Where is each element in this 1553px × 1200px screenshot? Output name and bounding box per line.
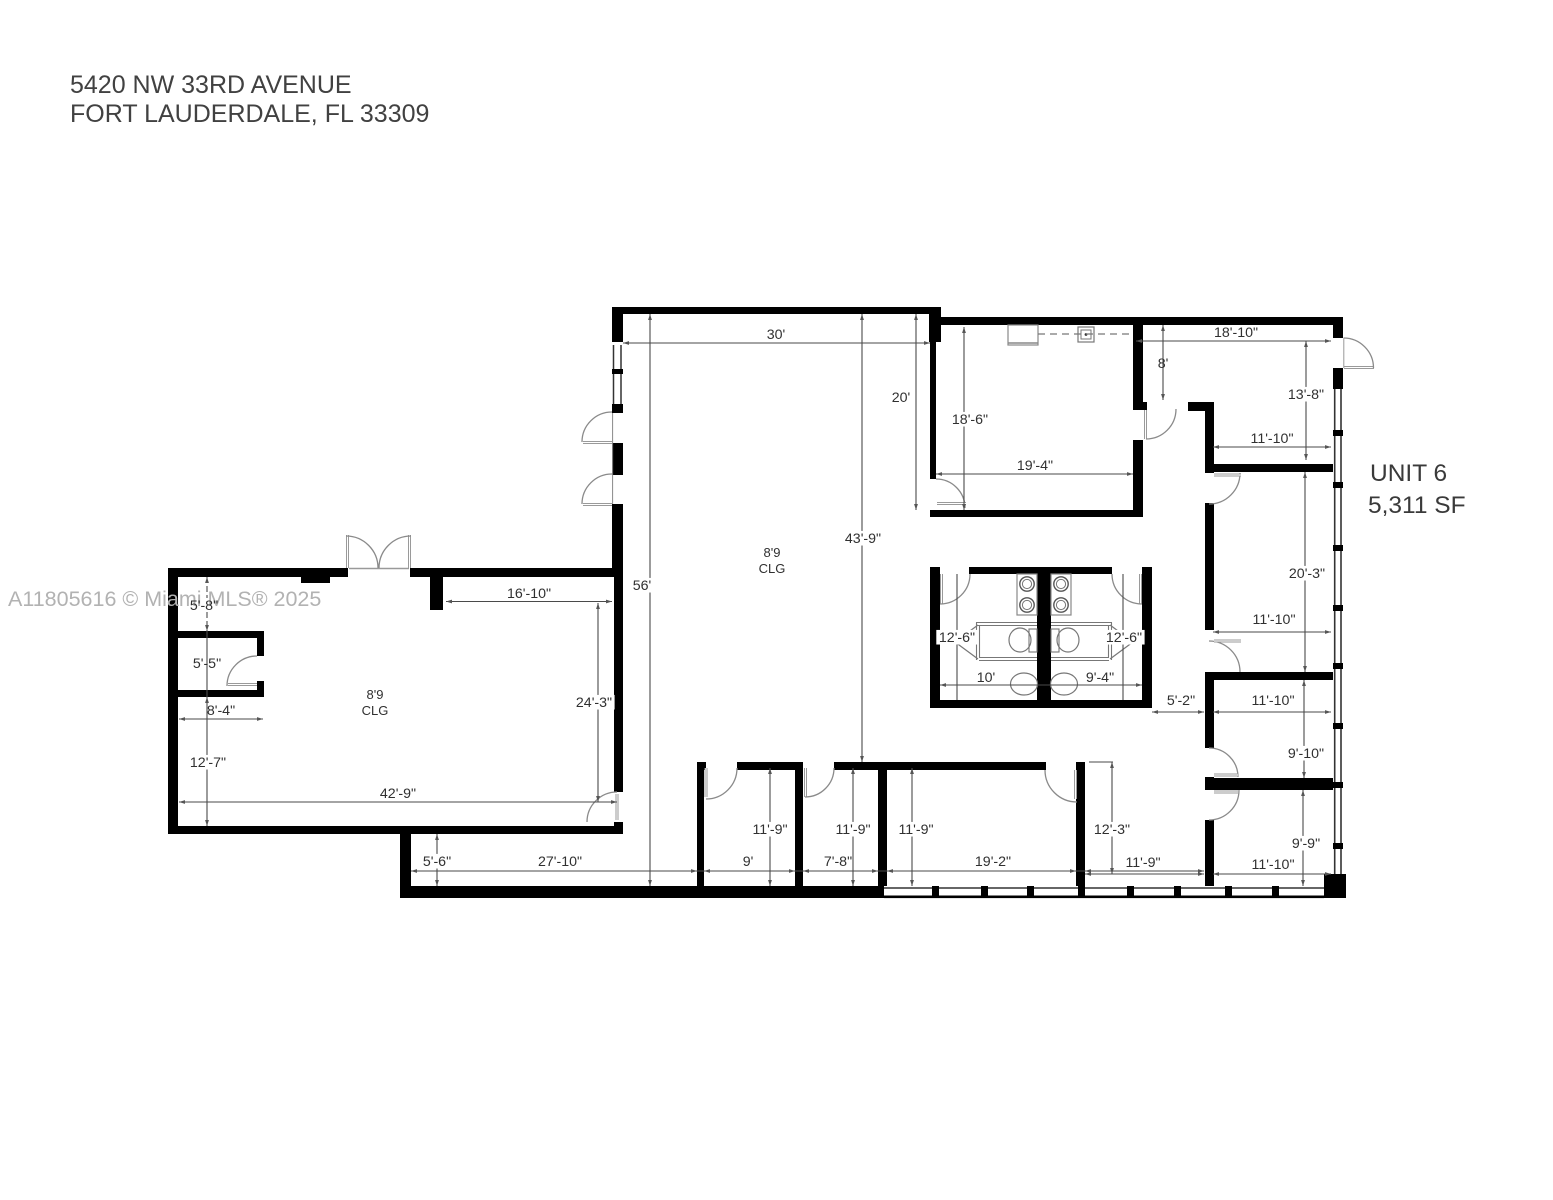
svg-text:12'-7": 12'-7" <box>190 755 226 771</box>
svg-text:9'-10": 9'-10" <box>1288 746 1324 762</box>
svg-text:20'-3": 20'-3" <box>1289 566 1325 582</box>
svg-text:11'-9": 11'-9" <box>835 822 870 838</box>
svg-text:CLG: CLG <box>362 703 389 718</box>
svg-text:9': 9' <box>743 854 754 870</box>
svg-text:CLG: CLG <box>759 561 786 576</box>
svg-text:27'-10": 27'-10" <box>538 854 582 870</box>
svg-text:FORT LAUDERDALE, FL 33309: FORT LAUDERDALE, FL 33309 <box>70 100 429 128</box>
svg-text:8'9: 8'9 <box>764 545 781 560</box>
svg-text:5,311 SF: 5,311 SF <box>1368 492 1466 519</box>
svg-text:12'-6": 12'-6" <box>939 630 975 646</box>
svg-text:12'-6": 12'-6" <box>1106 630 1142 646</box>
svg-text:8'9: 8'9 <box>367 687 384 702</box>
svg-text:12'-3": 12'-3" <box>1094 822 1130 838</box>
svg-text:5'-5": 5'-5" <box>193 656 221 672</box>
svg-text:A11805616 © Miami MLS® 2025: A11805616 © Miami MLS® 2025 <box>8 587 321 611</box>
svg-text:10': 10' <box>977 670 996 686</box>
svg-text:5'-8": 5'-8" <box>190 598 218 614</box>
svg-text:19'-2": 19'-2" <box>975 854 1011 870</box>
svg-text:19'-4": 19'-4" <box>1017 458 1053 474</box>
svg-text:18'-6": 18'-6" <box>952 412 988 428</box>
svg-text:20': 20' <box>892 390 911 406</box>
svg-text:16'-10": 16'-10" <box>507 586 551 602</box>
svg-text:11'-10": 11'-10" <box>1252 857 1295 873</box>
svg-text:11'-10": 11'-10" <box>1252 693 1295 709</box>
svg-text:42'-9": 42'-9" <box>380 786 416 802</box>
svg-text:11'-10": 11'-10" <box>1253 612 1296 628</box>
svg-text:7'-8": 7'-8" <box>824 854 852 870</box>
svg-text:9'-9": 9'-9" <box>1292 836 1320 852</box>
svg-text:11'-10": 11'-10" <box>1251 431 1294 447</box>
svg-text:8'-4": 8'-4" <box>207 703 235 719</box>
svg-text:43'-9": 43'-9" <box>845 531 881 547</box>
svg-text:30': 30' <box>767 327 786 343</box>
svg-text:5420 NW 33RD AVENUE: 5420 NW 33RD AVENUE <box>70 71 352 99</box>
svg-text:11'-9": 11'-9" <box>898 822 933 838</box>
svg-text:UNIT 6: UNIT 6 <box>1370 460 1447 487</box>
svg-text:8': 8' <box>1158 356 1169 372</box>
svg-text:5'-2": 5'-2" <box>1167 693 1195 709</box>
svg-text:13'-8": 13'-8" <box>1288 387 1324 403</box>
svg-text:56': 56' <box>633 578 652 594</box>
svg-text:24'-3": 24'-3" <box>576 695 612 711</box>
svg-text:5'-6": 5'-6" <box>423 854 451 870</box>
svg-text:11'-9": 11'-9" <box>752 822 787 838</box>
svg-text:9'-4": 9'-4" <box>1086 670 1114 686</box>
svg-text:11'-9": 11'-9" <box>1125 855 1160 871</box>
svg-text:18'-10": 18'-10" <box>1214 325 1258 341</box>
